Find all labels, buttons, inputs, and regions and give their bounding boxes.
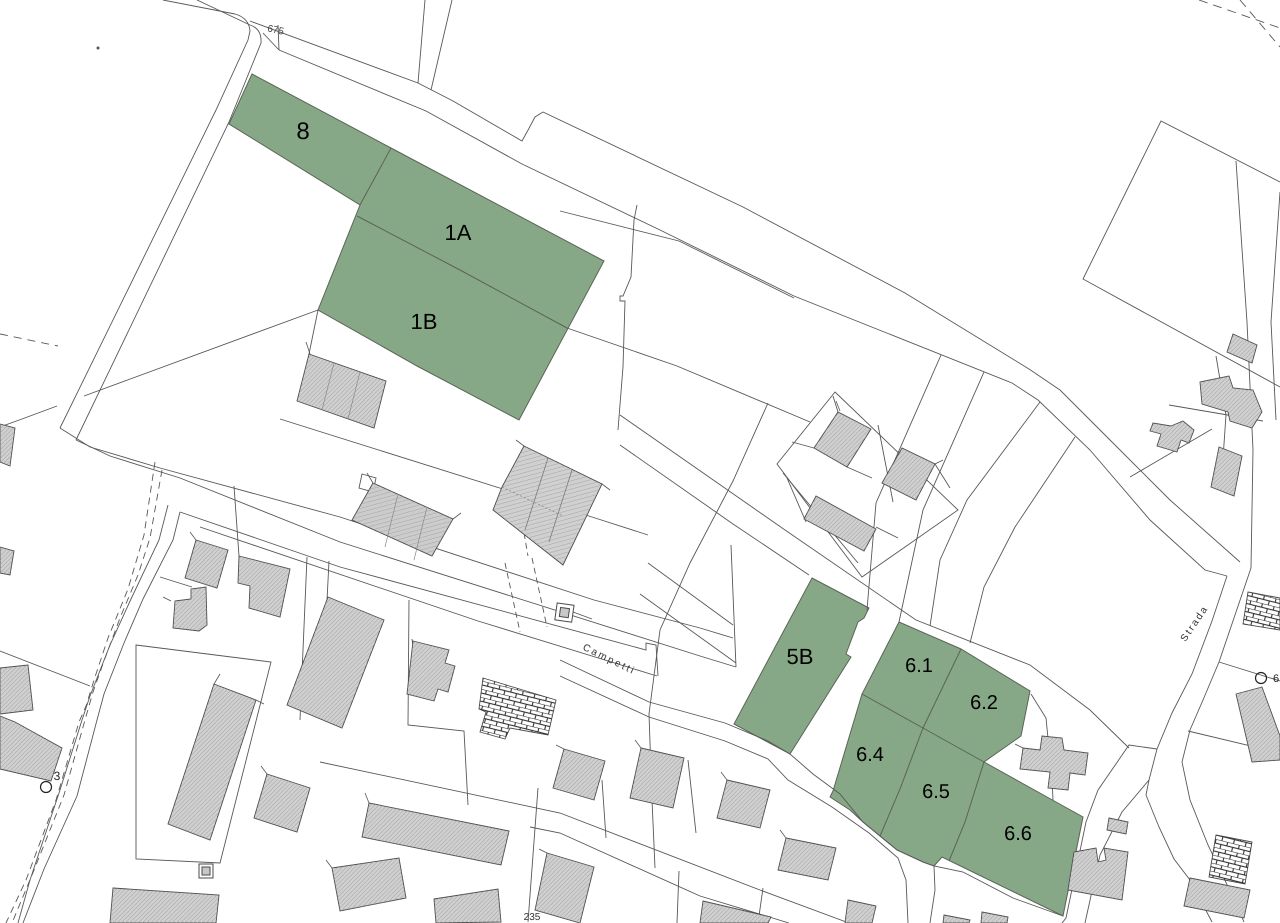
svg-text:5B: 5B bbox=[787, 644, 814, 669]
svg-text:235: 235 bbox=[524, 912, 541, 923]
svg-text:1B: 1B bbox=[411, 309, 438, 334]
svg-text:6.1: 6.1 bbox=[905, 655, 933, 677]
svg-text:6.4: 6.4 bbox=[856, 744, 884, 766]
svg-text:6.5: 6.5 bbox=[922, 781, 950, 803]
svg-text:6.2: 6.2 bbox=[970, 692, 998, 714]
svg-text:6.6: 6.6 bbox=[1004, 823, 1032, 845]
svg-text:8: 8 bbox=[296, 118, 309, 145]
svg-text:6: 6 bbox=[1273, 673, 1279, 685]
svg-text:1A: 1A bbox=[445, 220, 472, 245]
svg-text:3: 3 bbox=[54, 769, 61, 783]
